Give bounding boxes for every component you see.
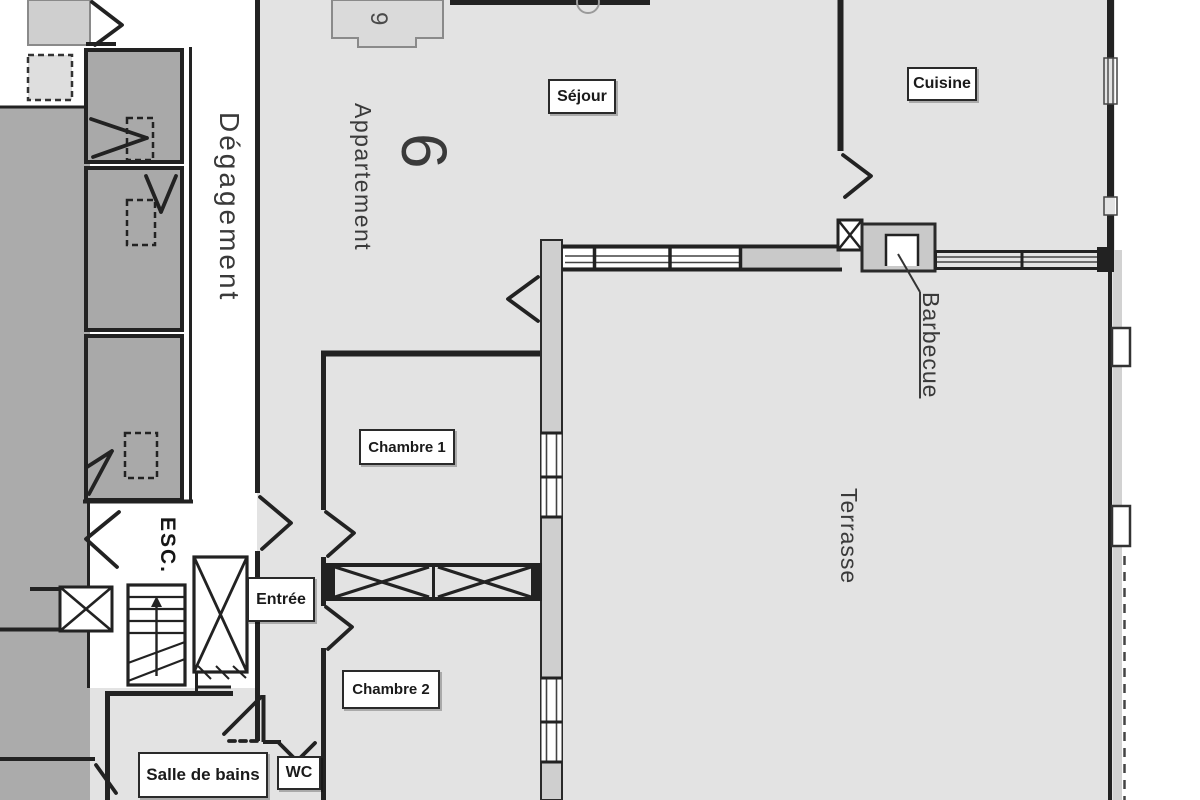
room-label-chambre-2: Chambre 2 [342, 670, 440, 709]
staircase [128, 585, 185, 685]
dashed-box [28, 55, 72, 100]
label-barbecue: Barbecue [919, 292, 942, 398]
room-label-chambre-1: Chambre 1 [359, 429, 455, 465]
common-zone-floor [0, 108, 90, 800]
room-label-sejour: Séjour [548, 79, 616, 114]
label-appartement: Appartement [351, 103, 374, 251]
room-label-salle-de-bains: Salle de bains [138, 752, 268, 798]
label-degagement: Dégagement [215, 112, 243, 302]
sejour-bottom-window-band [562, 246, 842, 270]
label-appartement-number: 6 [392, 133, 456, 169]
room-label-entree: Entrée [247, 577, 315, 622]
closet-3 [125, 433, 157, 478]
door-top-left [92, 2, 122, 45]
label-terrasse: Terrasse [837, 488, 860, 584]
x-braced-partition [326, 565, 540, 599]
floor-plan-drawing [0, 0, 1200, 800]
top-left-block [28, 0, 90, 45]
floor-plan-page: Séjour Cuisine Chambre 1 Entrée Chambre … [0, 0, 1200, 800]
room-label-cuisine: Cuisine [907, 67, 977, 101]
elevator-shaft [194, 557, 247, 679]
label-escalier: ESC. [157, 517, 178, 574]
room-label-wc: WC [277, 756, 321, 790]
corner-post [1097, 247, 1114, 272]
label-small-number: 9 [366, 12, 390, 25]
closet-2 [127, 200, 155, 245]
